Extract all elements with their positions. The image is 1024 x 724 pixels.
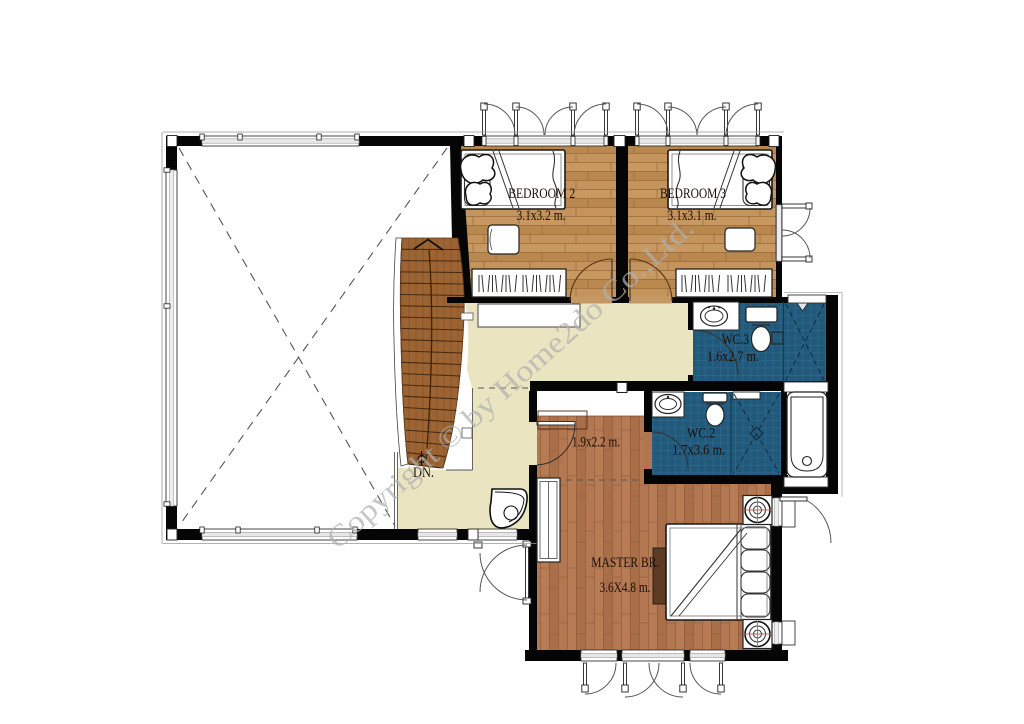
svg-text:1.9x2.2 m.: 1.9x2.2 m. xyxy=(572,435,620,451)
svg-text:WC.2: WC.2 xyxy=(687,426,715,442)
svg-text:1.6x2.7 m.: 1.6x2.7 m. xyxy=(707,349,759,365)
svg-text:WC.3: WC.3 xyxy=(722,332,749,348)
svg-text:BEDROOM 2: BEDROOM 2 xyxy=(508,186,575,202)
svg-text:BEDROOM 3: BEDROOM 3 xyxy=(660,186,726,202)
svg-text:3.6X4.8 m.: 3.6X4.8 m. xyxy=(600,580,651,596)
svg-text:1.7x3.6 m.: 1.7x3.6 m. xyxy=(672,443,725,459)
svg-text:3.1x3.2 m.: 3.1x3.2 m. xyxy=(517,208,566,224)
svg-text:MASTER BR.: MASTER BR. xyxy=(591,555,659,571)
